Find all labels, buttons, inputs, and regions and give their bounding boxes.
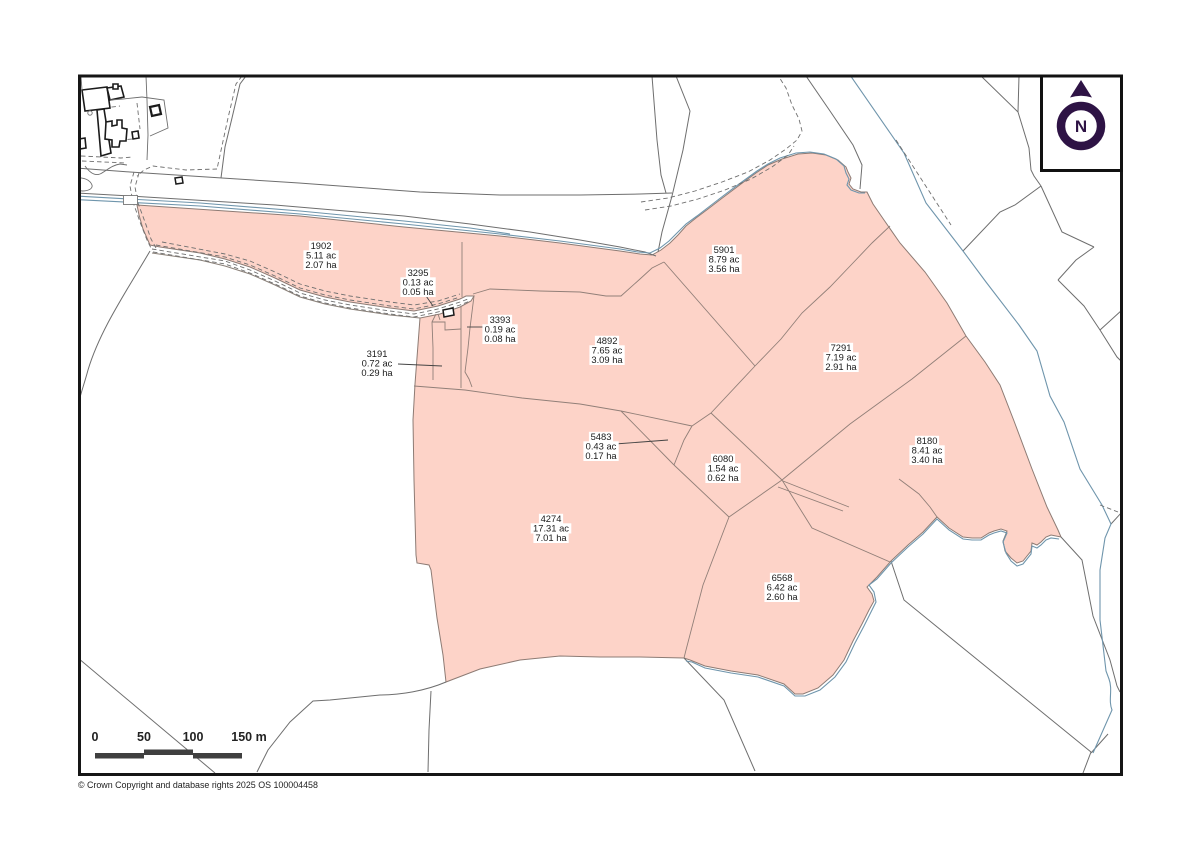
svg-text:0.62 ha: 0.62 ha [707,472,739,483]
svg-text:3.56 ha: 3.56 ha [708,263,740,274]
svg-text:150 m: 150 m [231,730,266,744]
svg-text:0.29 ha: 0.29 ha [361,367,393,378]
svg-text:3.09 ha: 3.09 ha [591,354,623,365]
svg-text:© Crown Copyright and database: © Crown Copyright and database rights 20… [78,780,318,790]
svg-text:0.08 ha: 0.08 ha [484,333,516,344]
svg-text:0.17 ha: 0.17 ha [585,450,617,461]
svg-text:0.05 ha: 0.05 ha [402,286,434,297]
svg-text:2.60 ha: 2.60 ha [766,591,798,602]
svg-text:0: 0 [92,730,99,744]
svg-text:3.40 ha: 3.40 ha [911,454,943,465]
svg-text:100: 100 [183,730,204,744]
svg-text:N: N [1075,117,1087,136]
svg-text:2.07 ha: 2.07 ha [305,259,337,270]
svg-text:7.01 ha: 7.01 ha [535,532,567,543]
svg-text:50: 50 [137,730,151,744]
svg-text:2.91 ha: 2.91 ha [825,361,857,372]
